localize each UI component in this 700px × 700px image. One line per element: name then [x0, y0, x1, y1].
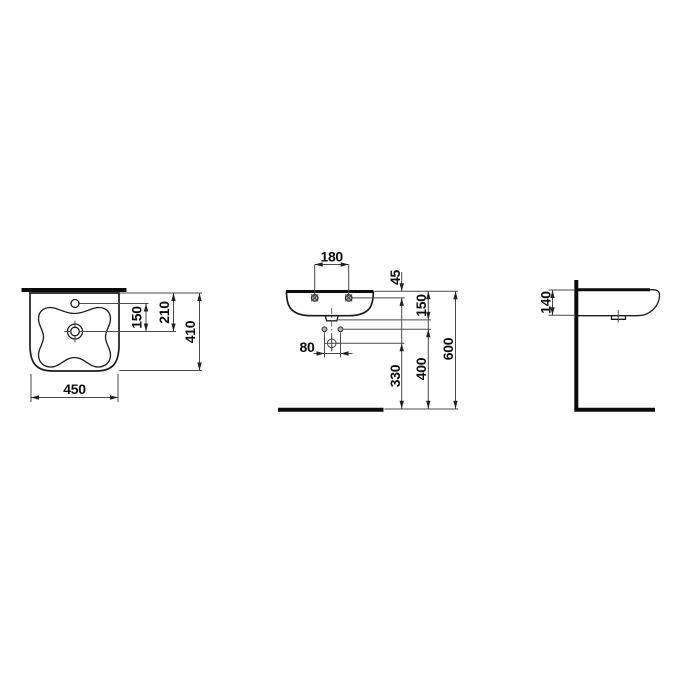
top-view: 150 210 410 450	[22, 290, 203, 402]
mounting-holes	[311, 294, 352, 301]
washbasin-technical-drawing: 150 210 410 450	[0, 0, 700, 700]
dim-label-450: 450	[63, 381, 86, 397]
wall-and-floor-line	[576, 280, 655, 410]
faucet-hole	[71, 300, 79, 308]
drawing-svg: 150 210 410 450	[0, 0, 700, 700]
dim-label-410: 410	[182, 320, 198, 343]
basin-outline-front	[287, 292, 374, 316]
dim-label-180: 180	[320, 249, 343, 265]
dim-label-330: 330	[387, 364, 403, 387]
dim-label-600: 600	[440, 337, 456, 360]
dim-label-140: 140	[538, 291, 554, 314]
dim-label-80: 80	[300, 339, 315, 355]
front-view: 180 45 150 80 330 400 600	[278, 249, 458, 410]
trap-hole-left	[322, 327, 327, 332]
dim-label-45: 45	[387, 270, 403, 285]
basin-profile-side	[578, 290, 660, 316]
trap-hole-right	[338, 327, 343, 332]
dim-label-150-top: 150	[129, 306, 145, 329]
drain-inner-circle	[71, 327, 80, 336]
dim-label-210: 210	[156, 301, 172, 324]
dim-label-150-front: 150	[413, 294, 429, 317]
drain-crosshair-ticks	[64, 321, 85, 342]
side-view: 140	[538, 280, 660, 410]
dim-label-400: 400	[413, 357, 429, 380]
front-view-dimension-lines	[314, 265, 456, 409]
